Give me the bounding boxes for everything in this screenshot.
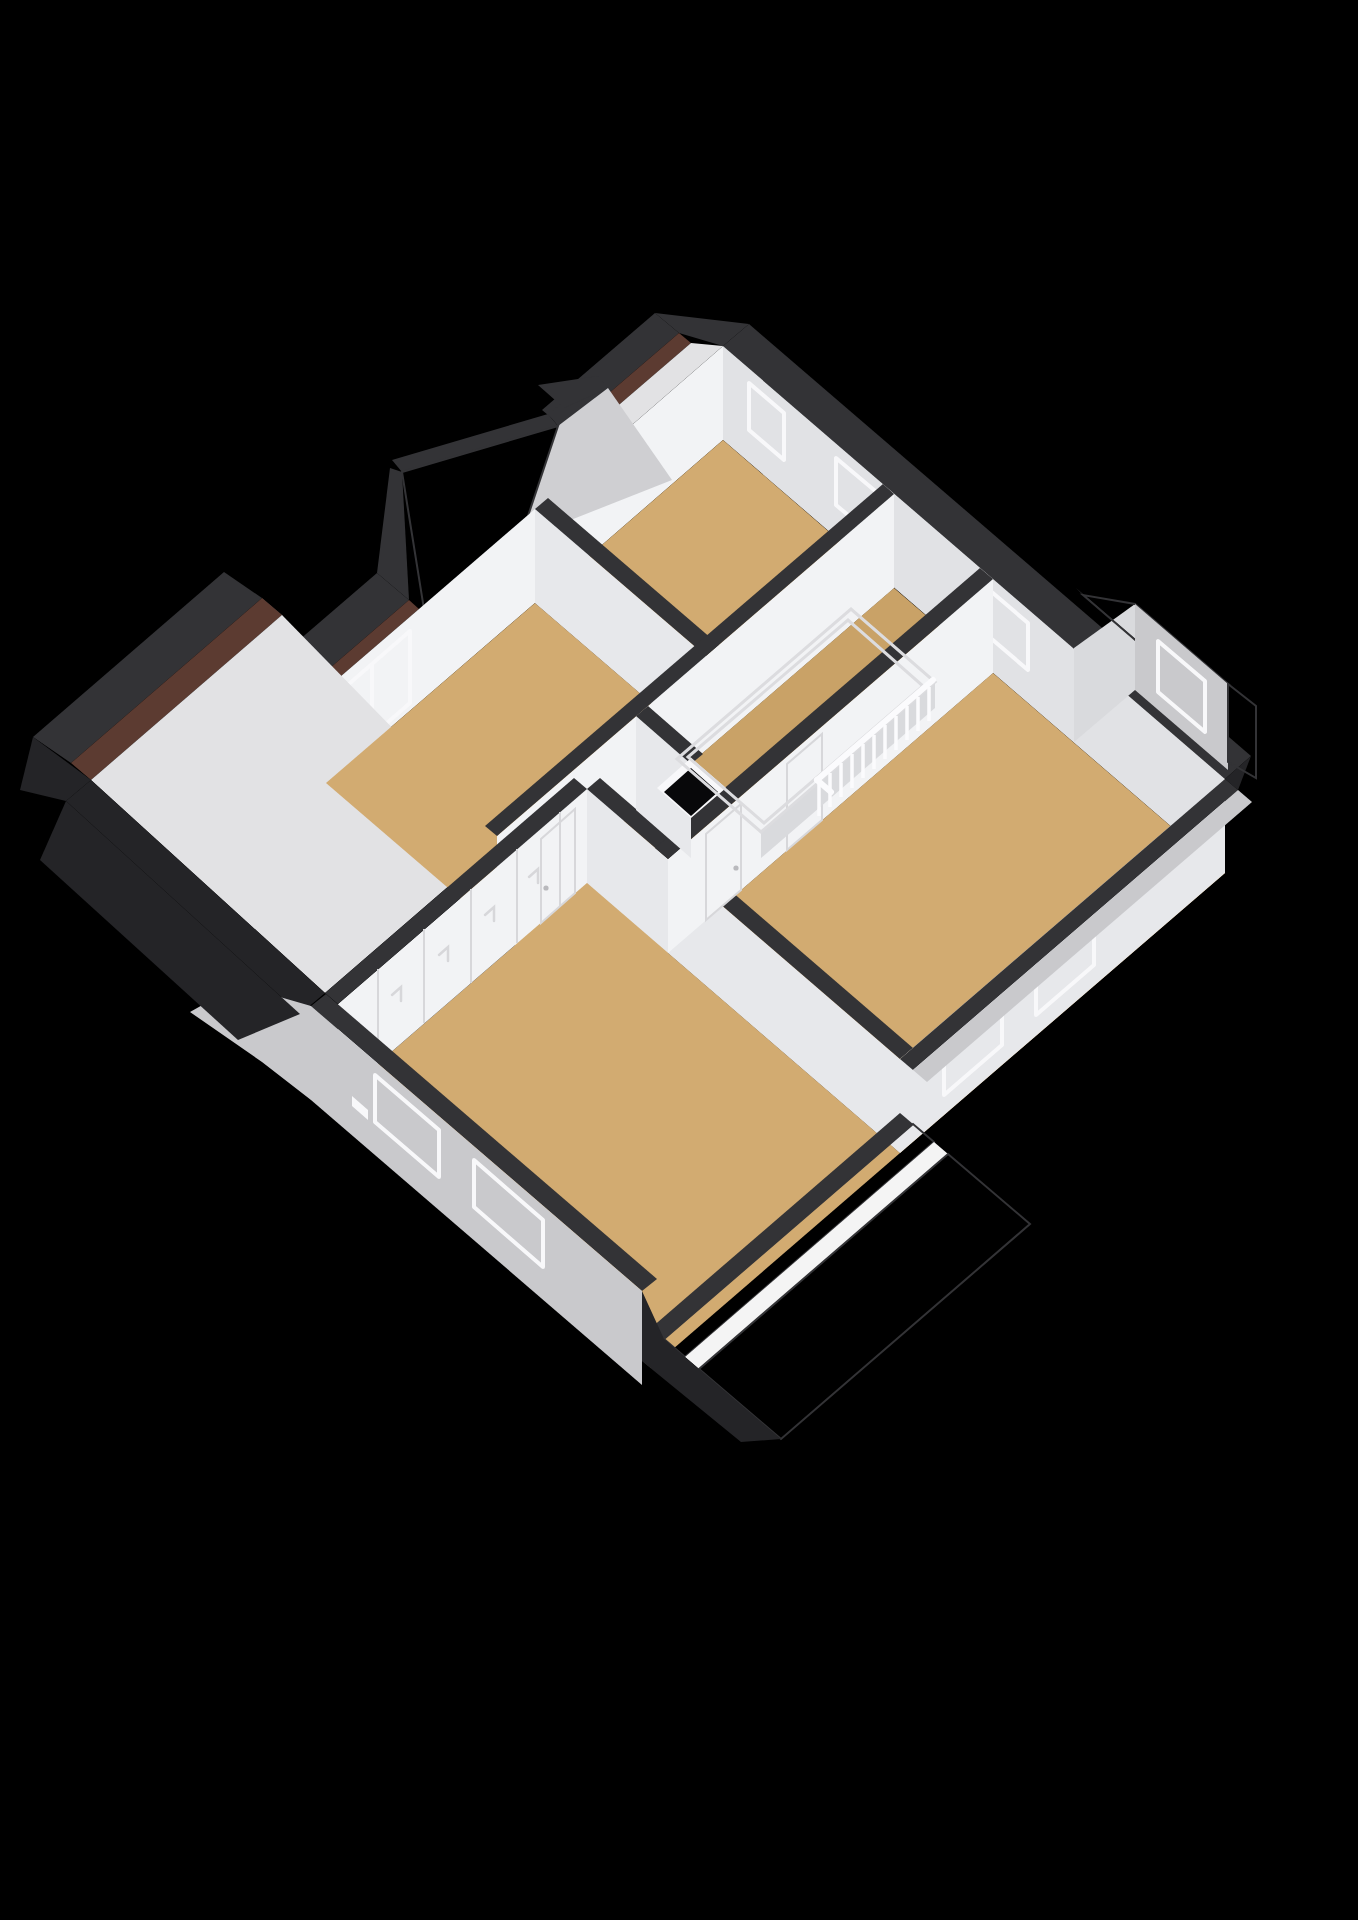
floorplan-3d-render (0, 0, 1358, 1920)
floorplan-canvas (0, 0, 1358, 1920)
door-handle (733, 865, 738, 870)
door-handle (543, 885, 548, 890)
